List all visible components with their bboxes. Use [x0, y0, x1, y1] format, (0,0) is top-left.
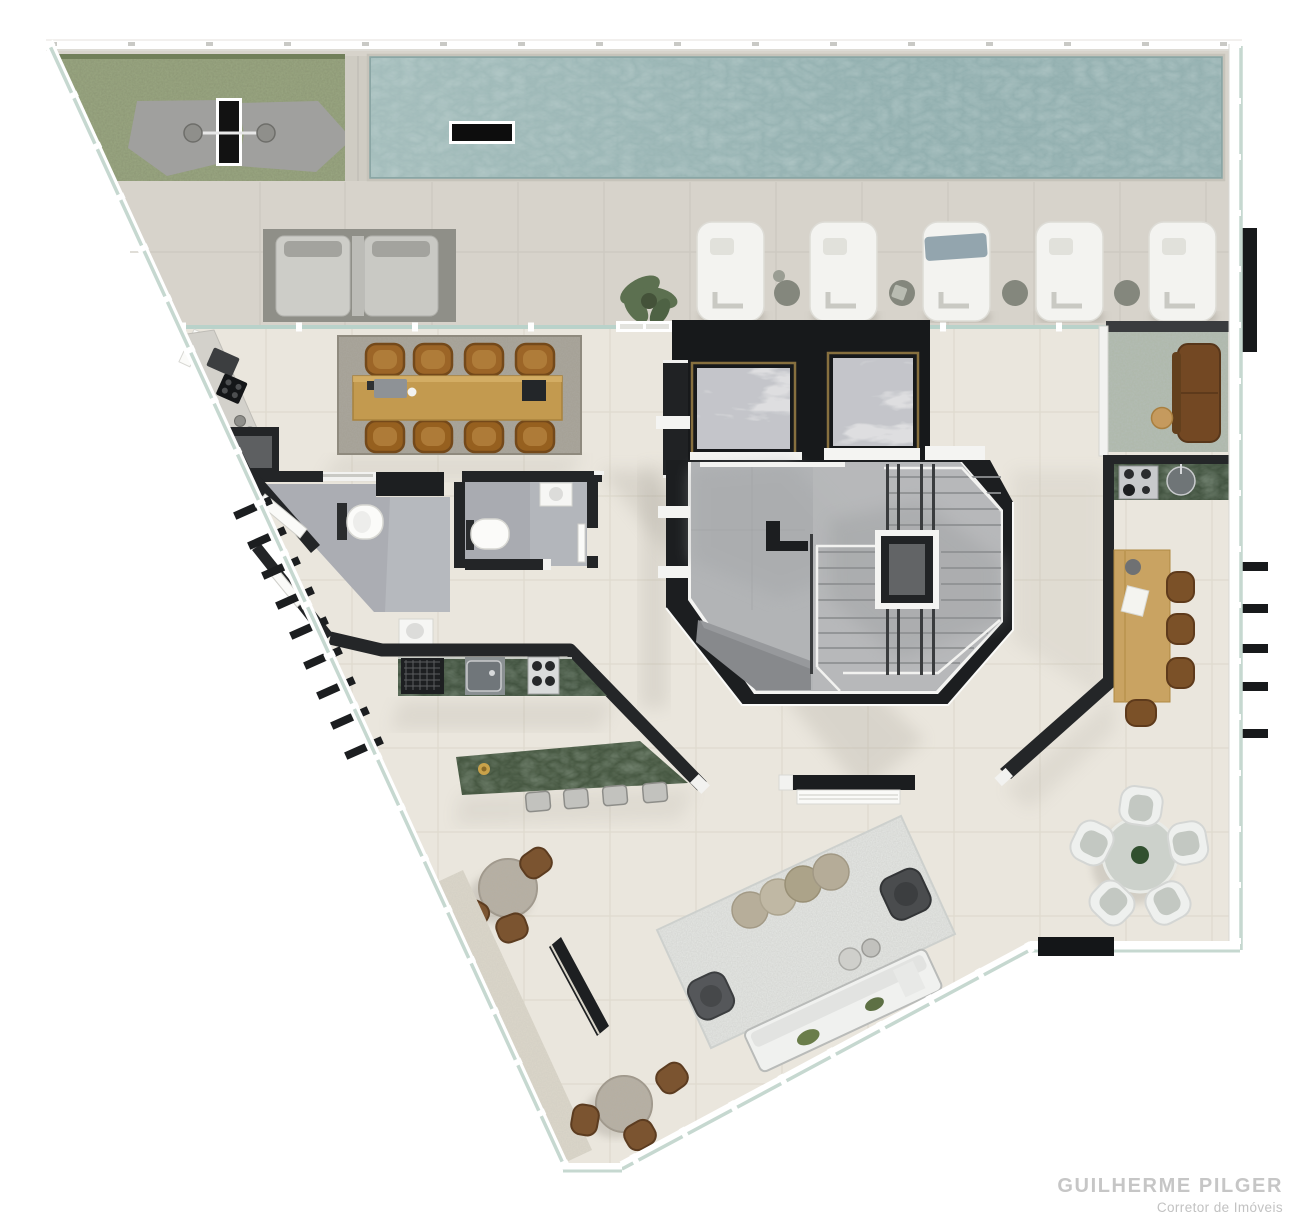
svg-text:GUILHERME PILGER: GUILHERME PILGER	[1057, 1175, 1283, 1197]
svg-text:Corretor de Imóveis: Corretor de Imóveis	[1157, 1200, 1283, 1215]
